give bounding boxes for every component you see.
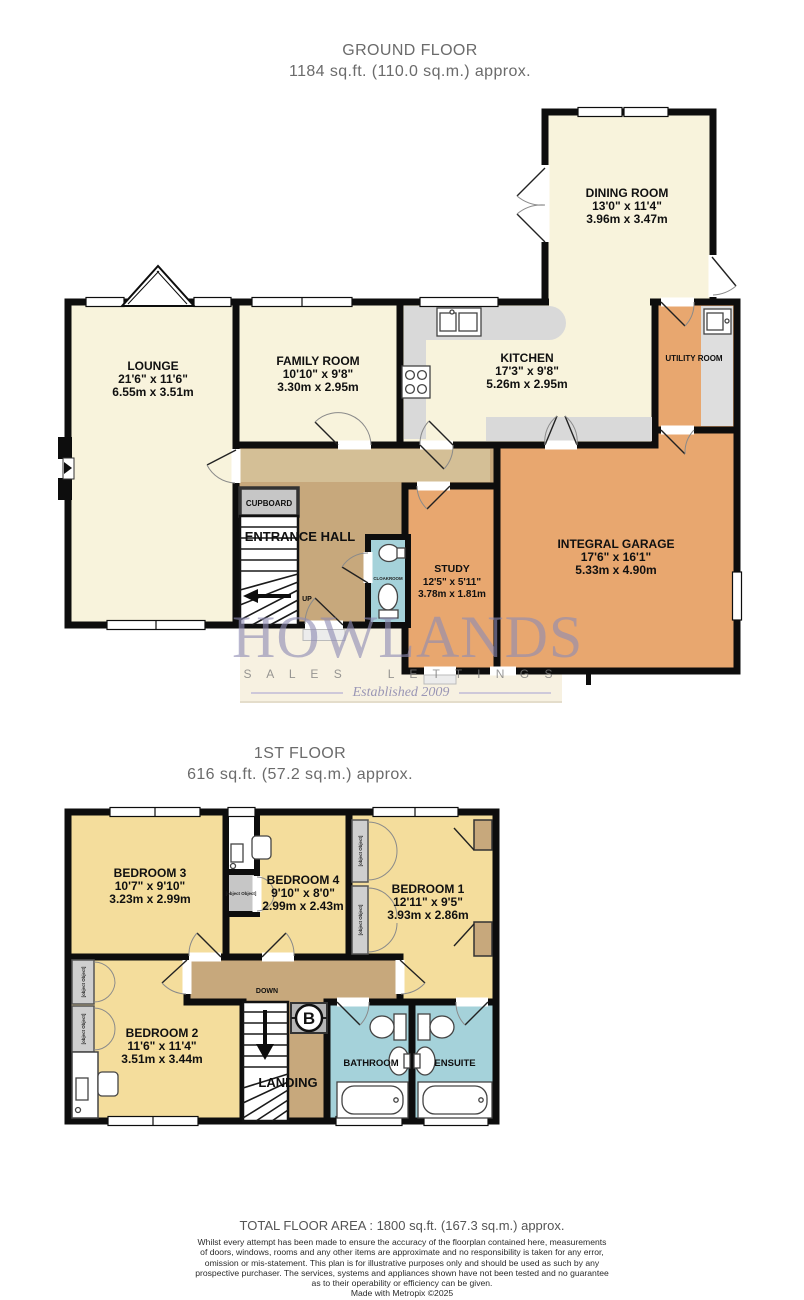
dining-kitchen-opening bbox=[549, 296, 650, 308]
boiler-letter: B bbox=[303, 1009, 315, 1028]
ff-cupboard-label: [object Object] bbox=[226, 891, 257, 896]
kitchen-counter-bottom bbox=[486, 417, 652, 441]
bedroom1-alcove-top bbox=[474, 820, 492, 850]
study-dims-imperial: 12'5" x 5'11" bbox=[423, 577, 481, 588]
disclaimer-line: omission or mis-statement. This plan is … bbox=[0, 1258, 804, 1268]
disclaimer-line: prospective purchaser. The services, sys… bbox=[0, 1268, 804, 1278]
lounge-dims-metric: 6.55m x 3.51m bbox=[112, 385, 193, 399]
gf-cupboard-label: CUPBOARD bbox=[246, 499, 292, 508]
study-label: STUDY bbox=[434, 563, 470, 575]
footer: TOTAL FLOOR AREA : 1800 sq.ft. (167.3 sq… bbox=[0, 1218, 804, 1299]
garage-dims-imperial: 17'6" x 16'1" bbox=[581, 550, 651, 564]
ensuite-toilet-icon bbox=[418, 1014, 454, 1040]
study-step bbox=[424, 675, 456, 684]
cloakroom-toilet-icon bbox=[379, 584, 399, 618]
kitchen-label: KITCHEN bbox=[500, 351, 553, 365]
disclaimer-line: Whilst every attempt has been made to en… bbox=[0, 1237, 804, 1247]
first-floor-title-text: 1ST FLOOR bbox=[0, 743, 600, 764]
dining-room-dims-metric: 3.96m x 3.47m bbox=[586, 212, 667, 226]
window-garage bbox=[733, 572, 742, 620]
lounge-label: LOUNGE bbox=[127, 359, 178, 373]
up-label: UP bbox=[302, 596, 312, 603]
bathroom-toilet-icon bbox=[370, 1014, 406, 1040]
ground-floor-plan: LOUNGE 21'6" x 11'6" 6.55m x 3.51m FAMIL… bbox=[58, 108, 742, 686]
bedroom2-cupboard-label-bottom: [object Object] bbox=[81, 1013, 86, 1044]
stove-icon bbox=[402, 366, 430, 398]
family-room-label: FAMILY ROOM bbox=[276, 354, 359, 368]
bedroom3-dims-imperial: 10'7" x 9'10" bbox=[115, 879, 185, 893]
ensuite-sink-icon bbox=[414, 1047, 435, 1075]
garage-label: INTEGRAL GARAGE bbox=[557, 537, 674, 551]
bedroom1-label: BEDROOM 1 bbox=[392, 882, 465, 896]
bedroom1-alcove-bottom bbox=[474, 922, 492, 956]
window-nook bbox=[228, 808, 255, 817]
chimney-breast bbox=[58, 437, 74, 500]
disclaimer: Whilst every attempt has been made to en… bbox=[0, 1237, 804, 1299]
bedroom1-cupboard-label-bottom: [object Object] bbox=[358, 904, 363, 935]
dining-room-dims-imperial: 13'0" x 11'4" bbox=[592, 199, 662, 213]
bedroom4-dims-imperial: 9'10" x 8'0" bbox=[271, 886, 335, 900]
front-step bbox=[303, 630, 345, 641]
dining-room-label: DINING ROOM bbox=[586, 186, 669, 200]
utility-sink-icon bbox=[704, 309, 731, 334]
bedroom2-dims-imperial: 11'6" x 11'4" bbox=[127, 1039, 196, 1053]
bedroom4-label: BEDROOM 4 bbox=[267, 873, 340, 887]
bay-window-lounge bbox=[122, 266, 194, 306]
kitchen-counter-top bbox=[404, 306, 566, 340]
bedroom1-dims-imperial: 12'11" x 9'5" bbox=[393, 895, 463, 909]
metropix-credit: Made with Metropix ©2025 bbox=[0, 1288, 804, 1298]
bedroom3-label: BEDROOM 3 bbox=[114, 866, 187, 880]
first-floor-plan: B bbox=[68, 808, 496, 1126]
ensuite-bath-icon bbox=[418, 1082, 492, 1118]
family-room-dims-metric: 3.30m x 2.95m bbox=[277, 380, 358, 394]
landing-label: LANDING bbox=[258, 1075, 317, 1090]
window-lounge-top-right bbox=[194, 298, 231, 307]
window-kitchen bbox=[420, 298, 498, 307]
first-floor-area-text: 616 sq.ft. (57.2 sq.m.) approx. bbox=[0, 764, 600, 785]
bedroom2-label: BEDROOM 2 bbox=[126, 1026, 199, 1040]
utility-room-label: UTILITY ROOM bbox=[665, 354, 723, 363]
bathroom-label: BATHROOM bbox=[343, 1058, 398, 1069]
window-dining-left bbox=[578, 108, 622, 117]
kitchen-dims-imperial: 17'3" x 9'8" bbox=[495, 364, 559, 378]
window-dining-right bbox=[624, 108, 668, 117]
disclaimer-line: as to their operability or efficiency ca… bbox=[0, 1278, 804, 1288]
bathroom-bath-icon bbox=[337, 1082, 408, 1118]
kitchen-sink-icon bbox=[437, 308, 481, 336]
bedroom2-cupboard-label-top: [object Object] bbox=[81, 966, 86, 997]
ensuite-label: ENSUITE bbox=[434, 1058, 475, 1069]
cloakroom-label: CLOAKROOM bbox=[373, 576, 403, 581]
study-dims-metric: 3.78m x 1.81m bbox=[418, 589, 486, 600]
floorplan-drawing: LOUNGE 21'6" x 11'6" 6.55m x 3.51m FAMIL… bbox=[0, 0, 804, 1300]
down-label: DOWN bbox=[256, 988, 278, 995]
bedroom2-dims-metric: 3.51m x 3.44m bbox=[121, 1052, 202, 1066]
disclaimer-line: of doors, windows, rooms and any other i… bbox=[0, 1247, 804, 1257]
garage-dims-metric: 5.33m x 4.90m bbox=[575, 563, 656, 577]
entrance-hall-label: ENTRANCE HALL bbox=[245, 529, 356, 544]
first-floor-title: 1ST FLOOR 616 sq.ft. (57.2 sq.m.) approx… bbox=[0, 743, 600, 785]
total-floor-area: TOTAL FLOOR AREA : 1800 sq.ft. (167.3 sq… bbox=[0, 1218, 804, 1233]
bedroom1-cupboard-label-top: [object Object] bbox=[358, 835, 363, 866]
bedroom3-dims-metric: 3.23m x 2.99m bbox=[109, 892, 190, 906]
lounge-dims-imperial: 21'6" x 11'6" bbox=[118, 372, 188, 386]
kitchen-dims-metric: 5.26m x 2.95m bbox=[486, 377, 567, 391]
window-lounge-top-left bbox=[86, 298, 124, 307]
bedroom4-dims-metric: 2.99m x 2.43m bbox=[262, 899, 343, 913]
family-room-dims-imperial: 10'10" x 9'8" bbox=[283, 367, 353, 381]
floorplan-page: GROUND FLOOR 1184 sq.ft. (110.0 sq.m.) a… bbox=[0, 0, 804, 1300]
bedroom1-dims-metric: 3.93m x 2.86m bbox=[387, 908, 468, 922]
